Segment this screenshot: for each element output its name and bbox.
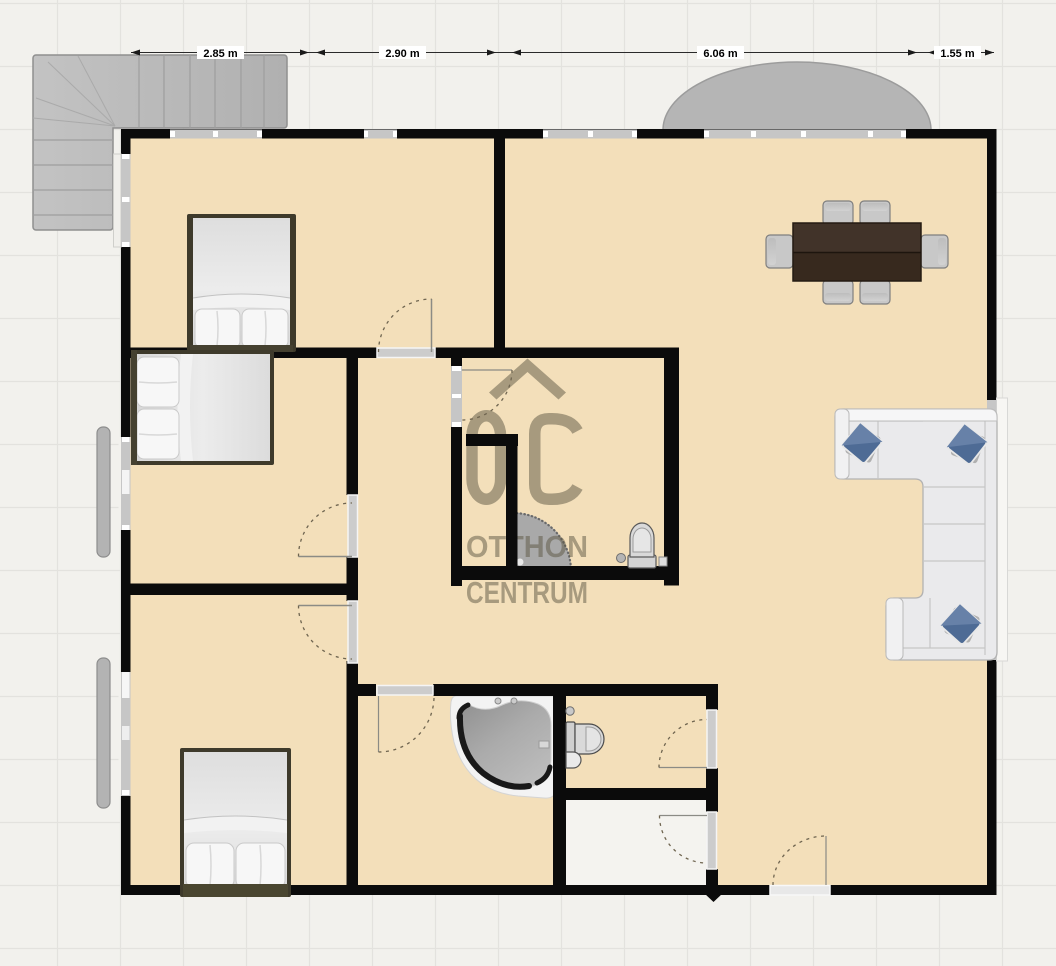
svg-text:1.55 m: 1.55 m — [940, 48, 974, 60]
svg-text:2.85 m: 2.85 m — [203, 48, 237, 60]
svg-text:OTTHON: OTTHON — [466, 529, 588, 564]
svg-text:2.90 m: 2.90 m — [385, 48, 419, 60]
svg-text:CENTRUM: CENTRUM — [466, 575, 588, 610]
svg-text:6.06 m: 6.06 m — [703, 48, 737, 60]
